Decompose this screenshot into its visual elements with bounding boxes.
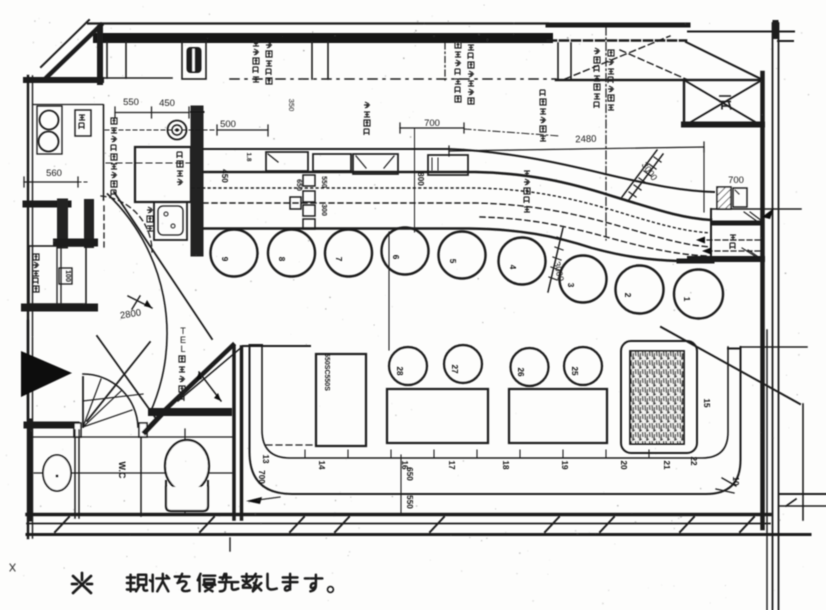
svg-text:700: 700 xyxy=(257,470,266,484)
svg-text:1.8: 1.8 xyxy=(245,152,252,161)
svg-text:5: 5 xyxy=(448,259,457,264)
svg-text:4: 4 xyxy=(508,265,517,270)
svg-text:650: 650 xyxy=(295,179,302,191)
svg-text:650: 650 xyxy=(405,467,414,481)
svg-text:700: 700 xyxy=(728,175,744,186)
svg-text:21: 21 xyxy=(662,460,671,470)
svg-text:100: 100 xyxy=(64,270,71,282)
svg-text:W.C: W.C xyxy=(117,462,127,479)
svg-text:L: L xyxy=(180,344,185,354)
svg-text:450: 450 xyxy=(159,98,175,109)
svg-text:26: 26 xyxy=(516,367,525,377)
svg-text:20: 20 xyxy=(619,460,628,470)
svg-text:17: 17 xyxy=(447,460,456,470)
svg-text:2480: 2480 xyxy=(575,134,597,146)
svg-text:28: 28 xyxy=(395,366,404,376)
svg-text:7: 7 xyxy=(334,257,343,262)
svg-text:350: 350 xyxy=(287,99,296,112)
svg-text:550: 550 xyxy=(123,97,139,108)
svg-text:14: 14 xyxy=(317,460,326,470)
svg-text:700: 700 xyxy=(424,118,440,129)
svg-text:500: 500 xyxy=(220,119,236,130)
svg-text:550: 550 xyxy=(405,495,414,509)
svg-text:9: 9 xyxy=(220,257,229,262)
svg-text:18: 18 xyxy=(501,460,510,470)
svg-text:300: 300 xyxy=(320,204,327,216)
svg-text:22: 22 xyxy=(689,456,698,466)
svg-text:25: 25 xyxy=(570,366,579,376)
svg-text:550: 550 xyxy=(320,176,327,188)
svg-text:560: 560 xyxy=(46,168,62,179)
svg-text:3: 3 xyxy=(566,283,575,288)
svg-text:1: 1 xyxy=(682,297,691,302)
svg-text:6: 6 xyxy=(391,255,400,260)
svg-text:800: 800 xyxy=(416,172,425,186)
svg-text:2: 2 xyxy=(623,293,632,298)
svg-text:19: 19 xyxy=(560,460,569,470)
svg-text:2800: 2800 xyxy=(119,307,142,321)
svg-text:10: 10 xyxy=(731,476,740,486)
svg-text:27: 27 xyxy=(450,364,459,374)
svg-text:15: 15 xyxy=(702,398,711,408)
svg-text:13: 13 xyxy=(261,454,270,464)
svg-text:550SC550S: 550SC550S xyxy=(323,353,330,391)
svg-text:450: 450 xyxy=(220,169,229,183)
